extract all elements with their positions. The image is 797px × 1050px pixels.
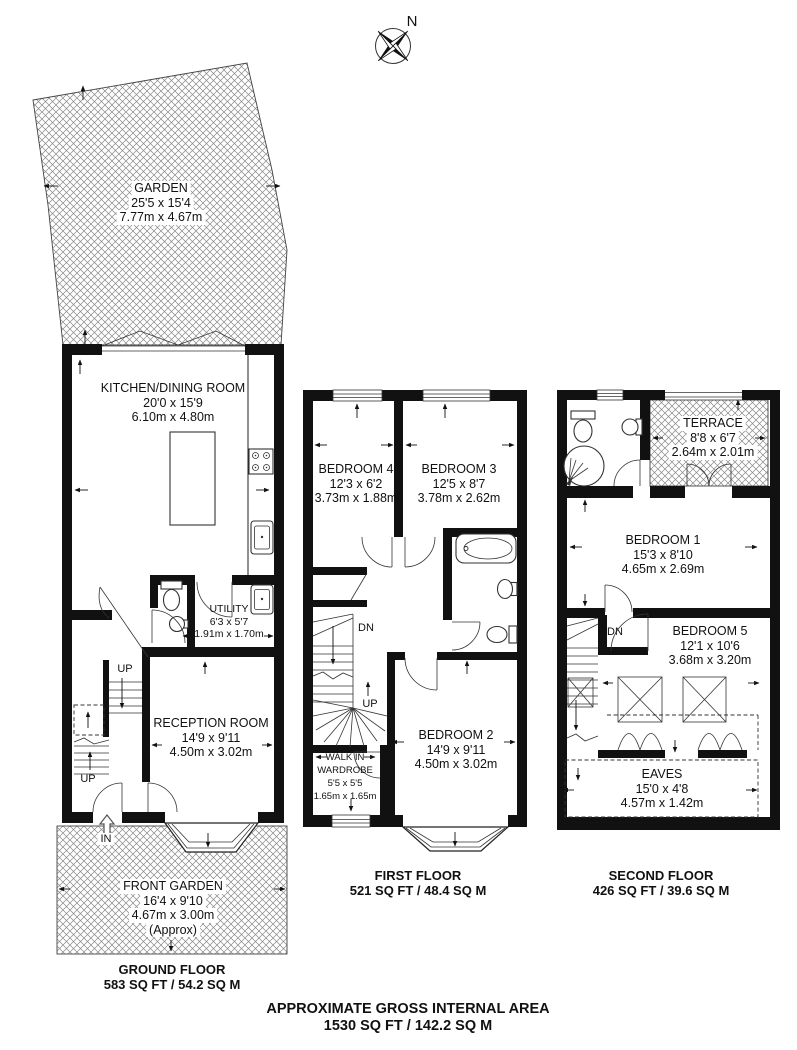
in-text: IN (98, 833, 115, 845)
kitchen-sink-icon (251, 521, 273, 554)
stairs-up-label-2: UP (80, 773, 95, 785)
window-ff-top-right (423, 390, 490, 401)
room-dim-metric: 4.57m x 1.42m (621, 796, 704, 811)
room-name: EAVES (621, 767, 704, 782)
floorplan-page: N GARDEN 25'5 x 15'4 7.77m x 4.67m KITCH… (0, 0, 797, 1050)
basin-icon-first (498, 580, 518, 599)
room-dim-metric: 4.50m x 3.02m (153, 745, 268, 760)
stairs-up-label-1: UP (117, 663, 132, 675)
room-dim-imperial: 12'3 x 6'2 (315, 477, 398, 492)
room-dim-imperial: 8'8 x 6'7 (687, 431, 739, 446)
room-name: GARDEN (131, 181, 190, 196)
eaves-cupboard-doors (618, 734, 742, 751)
room-label-reception: RECEPTION ROOM 14'9 x 9'11 4.50m x 3.02m (153, 716, 268, 760)
window-ff-top-left (333, 390, 382, 401)
room-name: BEDROOM 3 (418, 462, 501, 477)
area-value: 1530 SQ FT / 142.2 SQ M (266, 1018, 549, 1035)
room-dim-imperial: 20'0 x 15'9 (101, 396, 245, 411)
floor-area: 521 SQ FT / 48.4 SQ M (350, 883, 487, 898)
room-name: BEDROOM 5 (669, 624, 752, 639)
room-dim-metric: 4.65m x 2.69m (622, 562, 705, 577)
bay-window-ff (403, 827, 508, 851)
room-dim-metric: 3.68m x 3.20m (669, 653, 752, 668)
room-dim-metric: 3.73m x 1.88m (315, 491, 398, 506)
room-label-bedroom4: BEDROOM 4 12'3 x 6'2 3.73m x 1.88m (315, 462, 398, 506)
closet-door (351, 573, 367, 600)
floor-title-second: SECOND FLOOR 426 SQ FT / 39.6 SQ M (593, 868, 730, 898)
room-dim-imperial: 12'5 x 8'7 (418, 477, 501, 492)
door-bedroom2 (405, 658, 437, 690)
floor-name: SECOND FLOOR (593, 868, 730, 883)
door-bedroom1 (605, 585, 632, 612)
stairs-dn-label-ff: DN (358, 622, 374, 634)
room-label-eaves: EAVES 15'0 x 4'8 4.57m x 1.42m (621, 767, 704, 811)
room-dim-metric: 3.78m x 2.62m (418, 491, 501, 506)
room-label-bedroom1: BEDROOM 1 15'3 x 8'10 4.65m x 2.69m (622, 533, 705, 577)
room-label-bedroom2: BEDROOM 2 14'9 x 9'11 4.50m x 3.02m (415, 728, 498, 772)
toilet-icon-first (487, 626, 517, 643)
basin-icon-second (622, 419, 642, 435)
room-name: BEDROOM 1 (622, 533, 705, 548)
stairs-first (313, 614, 387, 747)
gross-internal-area: APPROXIMATE GROSS INTERNAL AREA 1530 SQ … (266, 1001, 549, 1035)
room-name: BEDROOM 2 (415, 728, 498, 743)
room-dim-imperial: 15'0 x 4'8 (621, 782, 704, 797)
room-label-kitchen: KITCHEN/DINING ROOM 20'0 x 15'9 6.10m x … (101, 381, 245, 425)
door-bathroom (452, 622, 480, 650)
toilet-icon-ground (161, 581, 182, 611)
room-label-bedroom5: BEDROOM 5 12'1 x 10'6 3.68m x 3.20m (669, 624, 752, 668)
floor-name: GROUND FLOOR (104, 962, 241, 977)
door-shower-room (614, 460, 640, 486)
room-dim-metric: 4.67m x 3.00m (129, 908, 218, 923)
window-sf-top (597, 390, 623, 400)
window-ff-bottom (332, 815, 370, 827)
compass-north-label: N (407, 13, 418, 30)
room-dim-note: (Approx) (146, 923, 200, 938)
door-kitchen (99, 587, 148, 657)
terrace-railing (665, 393, 742, 398)
floor-name: FIRST FLOOR (350, 868, 487, 883)
room-label-garden: GARDEN 25'5 x 15'4 7.77m x 4.67m (117, 181, 206, 225)
shower-icon (564, 446, 604, 486)
room-label-front-garden: FRONT GARDEN 16'4 x 9'10 4.67m x 3.00m (… (120, 879, 226, 937)
stairs-ground-lower (74, 738, 109, 774)
understairs-store (74, 705, 104, 735)
rooflight-icon-stairs (568, 678, 593, 707)
room-name-line2: WARDROBE (314, 764, 377, 777)
hob-icon (249, 449, 273, 474)
room-name: UTILITY (194, 603, 263, 616)
room-dim-metric: 1.91m x 1.70m (194, 628, 263, 641)
floor-title-first: FIRST FLOOR 521 SQ FT / 48.4 SQ M (350, 868, 487, 898)
room-label-utility: UTILITY 6'3 x 5'7 1.91m x 1.70m (194, 603, 263, 641)
room-name: TERRACE (680, 416, 746, 431)
room-dim-imperial: 6'3 x 5'7 (194, 616, 263, 629)
room-dim-imperial: 25'5 x 15'4 (128, 196, 194, 211)
room-dim-metric: 4.50m x 3.02m (415, 757, 498, 772)
toilet-icon-second (571, 411, 595, 442)
room-dim-imperial: 5'5 x 5'5 (314, 777, 377, 790)
room-name-line1: WALK IN (314, 751, 377, 764)
bath-icon (456, 534, 516, 563)
room-label-bedroom3: BEDROOM 3 12'5 x 8'7 3.78m x 2.62m (418, 462, 501, 506)
room-dim-metric: 1.65m x 1.65m (314, 790, 377, 803)
room-dim-imperial: 14'9 x 9'11 (153, 731, 268, 746)
door-reception (148, 783, 177, 812)
area-title: APPROXIMATE GROSS INTERNAL AREA (266, 1001, 549, 1018)
room-dim-metric: 6.10m x 4.80m (101, 410, 245, 425)
stairs-up-label-ff: UP (362, 698, 377, 710)
room-dim-imperial: 16'4 x 9'10 (140, 894, 206, 909)
room-name: FRONT GARDEN (120, 879, 226, 894)
floor-area: 583 SQ FT / 54.2 SQ M (104, 977, 241, 992)
room-dim-metric: 2.64m x 2.01m (669, 445, 758, 460)
room-dim-imperial: 12'1 x 10'6 (669, 639, 752, 654)
room-label-wardrobe: WALK IN WARDROBE 5'5 x 5'5 1.65m x 1.65m (314, 751, 377, 803)
room-dim-imperial: 14'9 x 9'11 (415, 743, 498, 758)
room-dim-metric: 7.77m x 4.67m (117, 210, 206, 225)
room-label-terrace: TERRACE 8'8 x 6'7 2.64m x 2.01m (669, 416, 758, 460)
room-name: KITCHEN/DINING ROOM (101, 381, 245, 396)
stairs-ground-upper (109, 678, 142, 713)
room-dim-imperial: 15'3 x 8'10 (622, 548, 705, 563)
kitchen-island (170, 432, 215, 525)
door-bedroom4 (362, 537, 392, 567)
stairs-dn-label-sf: DN (607, 626, 623, 638)
entry-in-label: IN (98, 833, 115, 845)
floor-area: 426 SQ FT / 39.6 SQ M (593, 883, 730, 898)
floor-title-ground: GROUND FLOOR 583 SQ FT / 54.2 SQ M (104, 962, 241, 992)
door-bedroom3 (405, 537, 435, 567)
room-name: BEDROOM 4 (315, 462, 398, 477)
room-name: RECEPTION ROOM (153, 716, 268, 731)
